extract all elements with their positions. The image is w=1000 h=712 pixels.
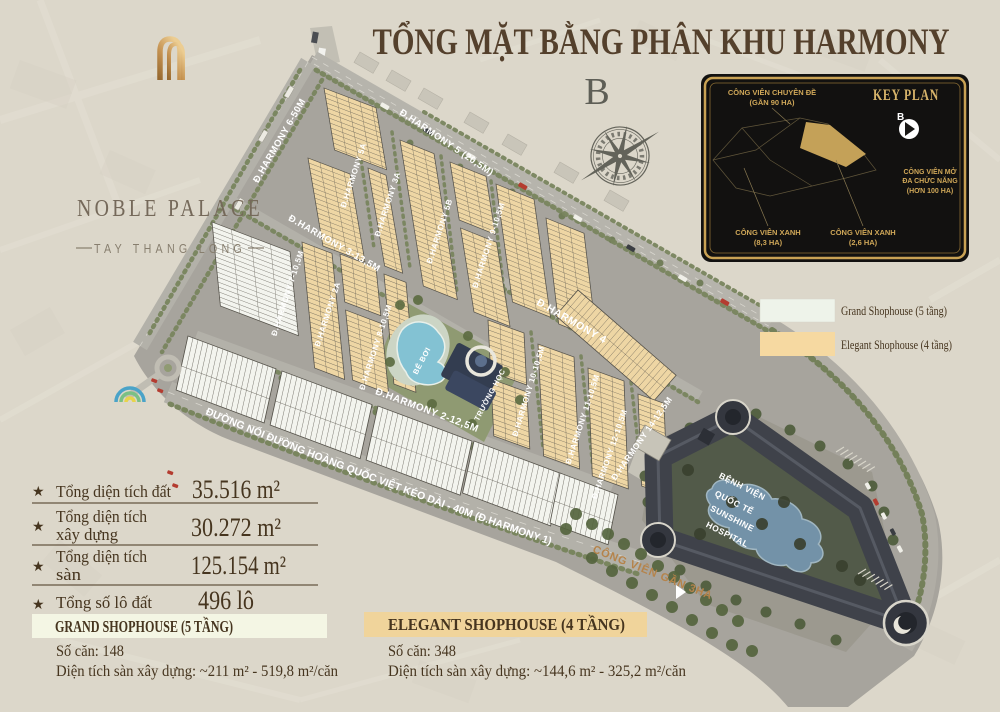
svg-text:Grand Shophouse (5 tầng): Grand Shophouse (5 tầng): [841, 303, 947, 318]
svg-text:30.272 m²: 30.272 m²: [191, 513, 281, 542]
svg-text:★: ★: [32, 485, 45, 500]
svg-text:★: ★: [32, 560, 45, 575]
svg-text:★: ★: [32, 598, 45, 613]
svg-text:KEY PLAN: KEY PLAN: [873, 87, 939, 104]
svg-text:CÔNG VIÊN MỞ: CÔNG VIÊN MỞ: [903, 167, 956, 176]
svg-text:125.154 m²: 125.154 m²: [191, 551, 286, 580]
svg-text:B: B: [584, 71, 609, 113]
svg-text:(GẦN 90 HA): (GẦN 90 HA): [749, 97, 795, 107]
svg-text:xây dựng: xây dựng: [56, 525, 118, 544]
svg-text:ELEGANT SHOPHOUSE (4 TẦNG): ELEGANT SHOPHOUSE (4 TẦNG): [388, 615, 625, 634]
svg-text:Tổng diện tích: Tổng diện tích: [56, 507, 147, 526]
svg-text:CÔNG VIÊN XANH: CÔNG VIÊN XANH: [735, 228, 800, 237]
svg-text:Diện tích sàn xây dựng: ~144,6: Diện tích sàn xây dựng: ~144,6 m² - 325,…: [388, 663, 686, 680]
svg-text:NOBLE PALACE: NOBLE PALACE: [77, 196, 263, 222]
svg-text:CÔNG VIÊN XANH: CÔNG VIÊN XANH: [830, 228, 895, 237]
svg-text:Số căn: 348: Số căn: 348: [388, 643, 456, 660]
svg-text:TAY THANG LONG: TAY THANG LONG: [94, 242, 246, 256]
svg-text:(HƠN 100 HA): (HƠN 100 HA): [907, 188, 953, 195]
svg-text:TỔNG MẶT BẰNG PHÂN KHU HARMONY: TỔNG MẶT BẰNG PHÂN KHU HARMONY: [373, 20, 950, 63]
svg-text:Số căn: 148: Số căn: 148: [56, 643, 124, 660]
svg-text:Tổng số lô đất: Tổng số lô đất: [56, 593, 152, 612]
svg-text:Diện tích sàn xây dựng: ~211 m: Diện tích sàn xây dựng: ~211 m² - 519,8 …: [56, 663, 338, 680]
svg-text:Tổng diện tích đất: Tổng diện tích đất: [56, 482, 171, 501]
svg-text:ĐA CHỨC NĂNG: ĐA CHỨC NĂNG: [902, 176, 958, 185]
svg-text:CÔNG VIÊN CHUYÊN ĐỀ: CÔNG VIÊN CHUYÊN ĐỀ: [728, 87, 816, 97]
svg-text:GRAND SHOPHOUSE (5 TẦNG): GRAND SHOPHOUSE (5 TẦNG): [55, 617, 233, 636]
svg-text:Elegant Shophouse (4 tầng): Elegant Shophouse (4 tầng): [841, 337, 952, 352]
svg-text:sàn: sàn: [56, 565, 82, 584]
svg-text:(2,6 HA): (2,6 HA): [849, 238, 878, 247]
svg-text:(8,3 HA): (8,3 HA): [754, 238, 783, 247]
svg-text:Tổng diện tích: Tổng diện tích: [56, 547, 147, 566]
svg-text:35.516 m²: 35.516 m²: [192, 475, 280, 504]
svg-text:★: ★: [32, 520, 45, 535]
svg-text:496 lô: 496 lô: [198, 586, 254, 615]
